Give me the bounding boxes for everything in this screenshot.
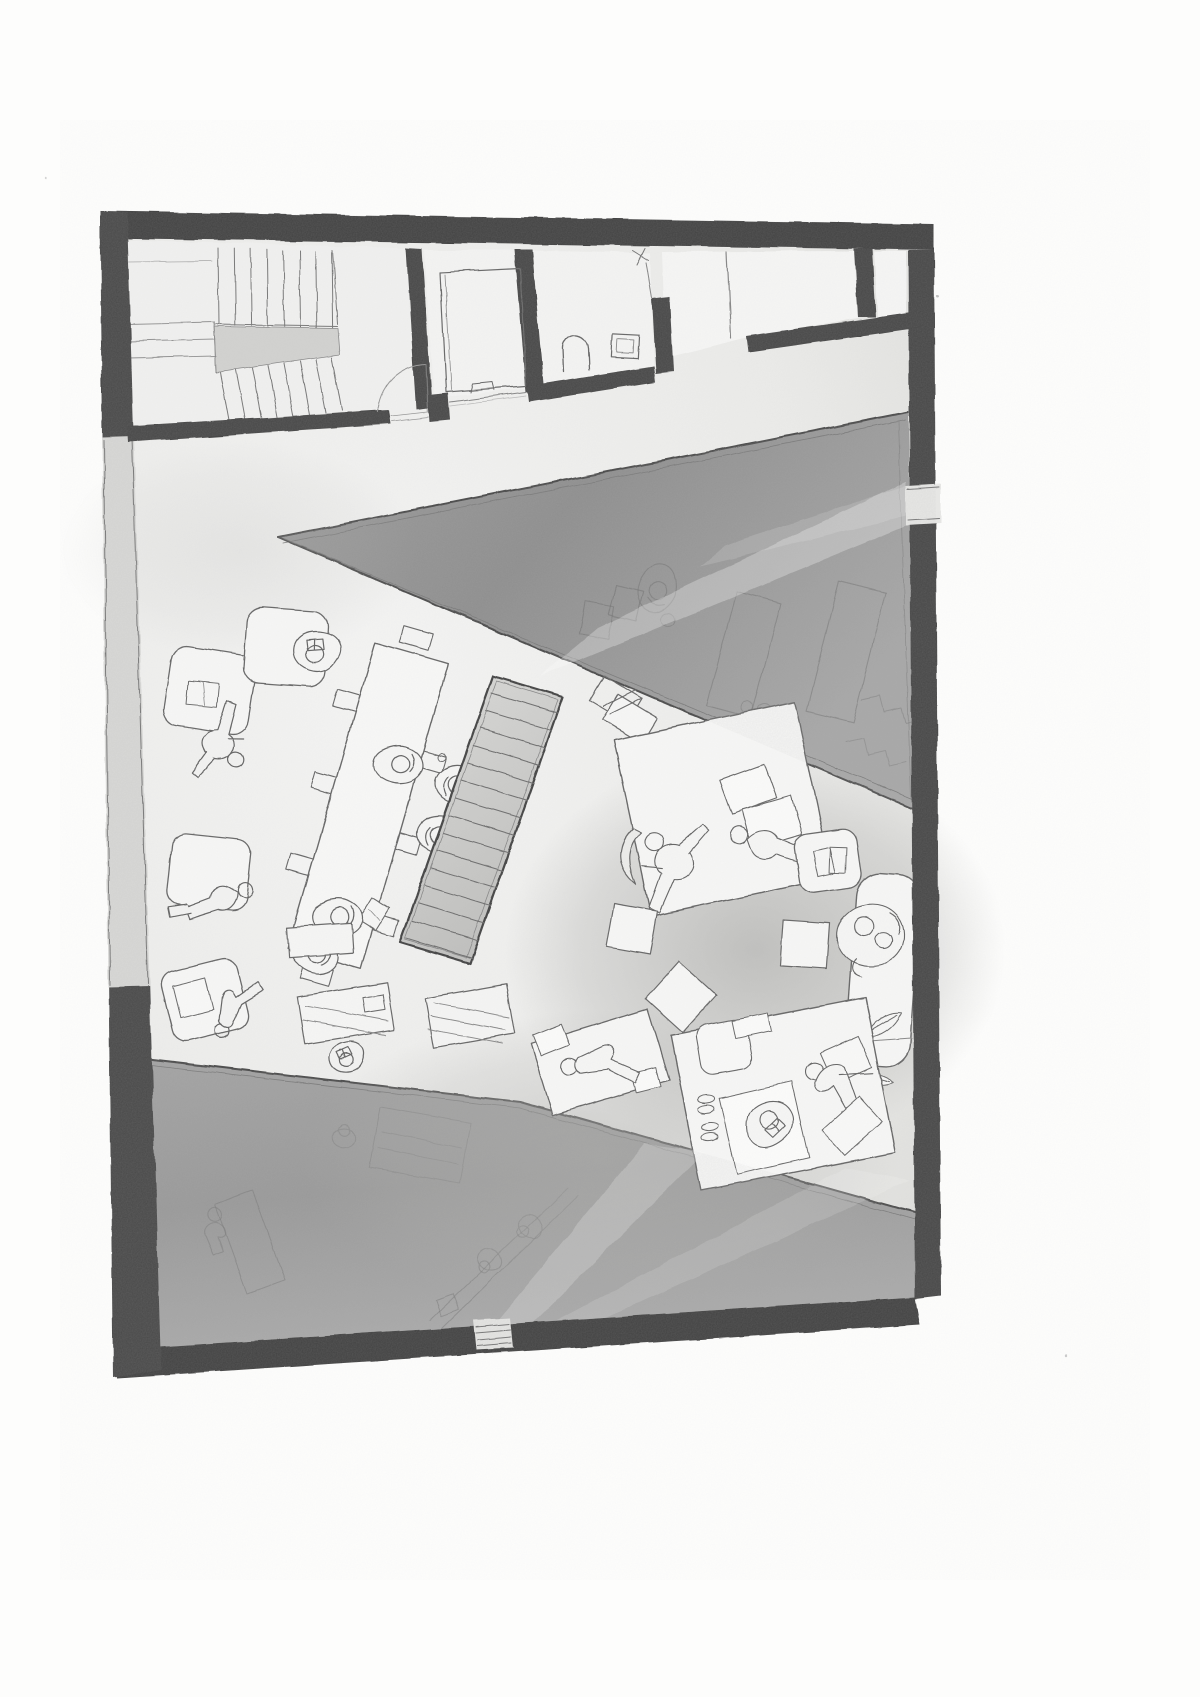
scanned-drawing-page (0, 0, 1200, 1697)
floor-plan-drawing (0, 0, 1200, 1697)
paper-grain-overlay (60, 120, 1150, 1580)
